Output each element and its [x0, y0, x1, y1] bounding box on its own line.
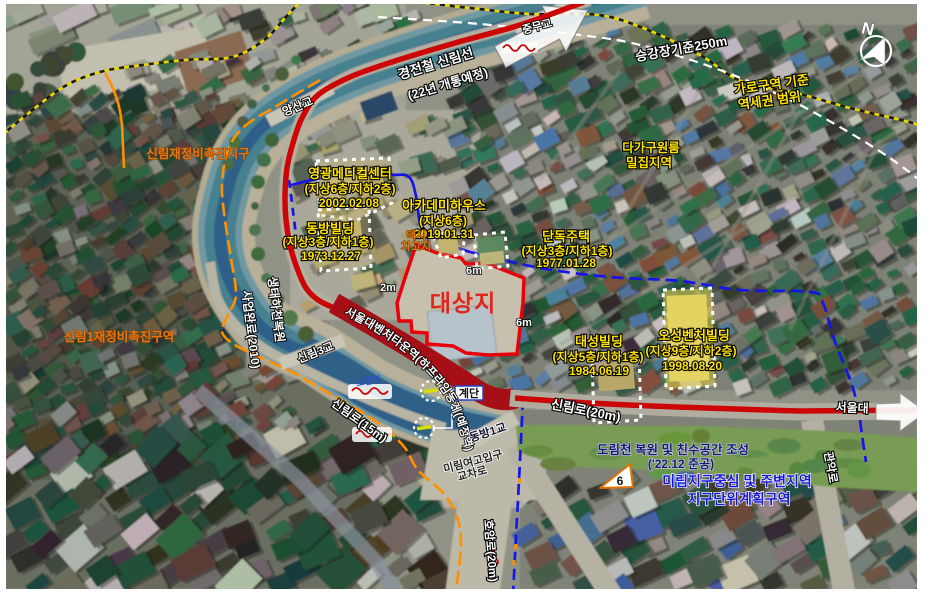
svg-text:대성빌딩: 대성빌딩 [575, 334, 623, 349]
svg-text:6m: 6m [466, 265, 482, 277]
svg-text:('22.12 준공): ('22.12 준공) [648, 457, 714, 471]
svg-text:서울대: 서울대 [835, 399, 869, 415]
svg-text:1998.08.20: 1998.08.20 [662, 359, 722, 373]
svg-text:6m: 6m [516, 317, 532, 329]
svg-text:차고지: 차고지 [401, 239, 431, 253]
svg-text:(지상6층/지하2층): (지상6층/지하2층) [305, 181, 396, 196]
svg-text:아카데미하우스: 아카데미하우스 [402, 198, 486, 213]
svg-text:오성벤처빌딩: 오성벤처빌딩 [658, 328, 730, 343]
svg-text:다가구원룸: 다가구원룸 [622, 140, 680, 155]
svg-text:(지상5층/지하1층): (지상5층/지하1층) [553, 349, 644, 364]
svg-text:계단: 계단 [459, 386, 479, 400]
svg-text:(지상9층/지하2층): (지상9층/지하2층) [646, 343, 737, 358]
svg-text:2002.02.08: 2002.02.08 [319, 196, 379, 210]
svg-text:1977.01.28: 1977.01.28 [536, 256, 596, 270]
svg-text:영광메디컬센터: 영광메디컬센터 [308, 166, 392, 181]
svg-text:대상지: 대상지 [430, 290, 496, 316]
svg-text:(지상6층): (지상6층) [419, 213, 467, 228]
svg-text:미림지구중심 및 주변지역: 미림지구중심 및 주변지역 [662, 473, 811, 489]
svg-text:도림천 복원 및 친수공간 조성: 도림천 복원 및 친수공간 조성 [597, 442, 749, 457]
svg-text:1984.06.19: 1984.06.19 [569, 364, 629, 378]
svg-text:단독주택: 단독주택 [542, 229, 590, 244]
svg-text:신림재정비촉진지구: 신림재정비촉진지구 [146, 146, 250, 161]
svg-text:밀집지역: 밀집지역 [626, 155, 672, 170]
svg-text:신림1재정비촉진구역: 신림1재정비촉진구역 [64, 329, 174, 344]
svg-text:6: 6 [617, 474, 624, 488]
svg-text:지구단위계획구역: 지구단위계획구역 [687, 491, 790, 507]
svg-text:2m: 2m [380, 282, 396, 294]
svg-text:동방빌딩: 동방빌딩 [306, 221, 354, 236]
svg-text:(지상3층/지하1층): (지상3층/지하1층) [283, 234, 374, 249]
svg-text:택시: 택시 [406, 228, 426, 242]
svg-text:1973.12.27: 1973.12.27 [301, 249, 361, 263]
